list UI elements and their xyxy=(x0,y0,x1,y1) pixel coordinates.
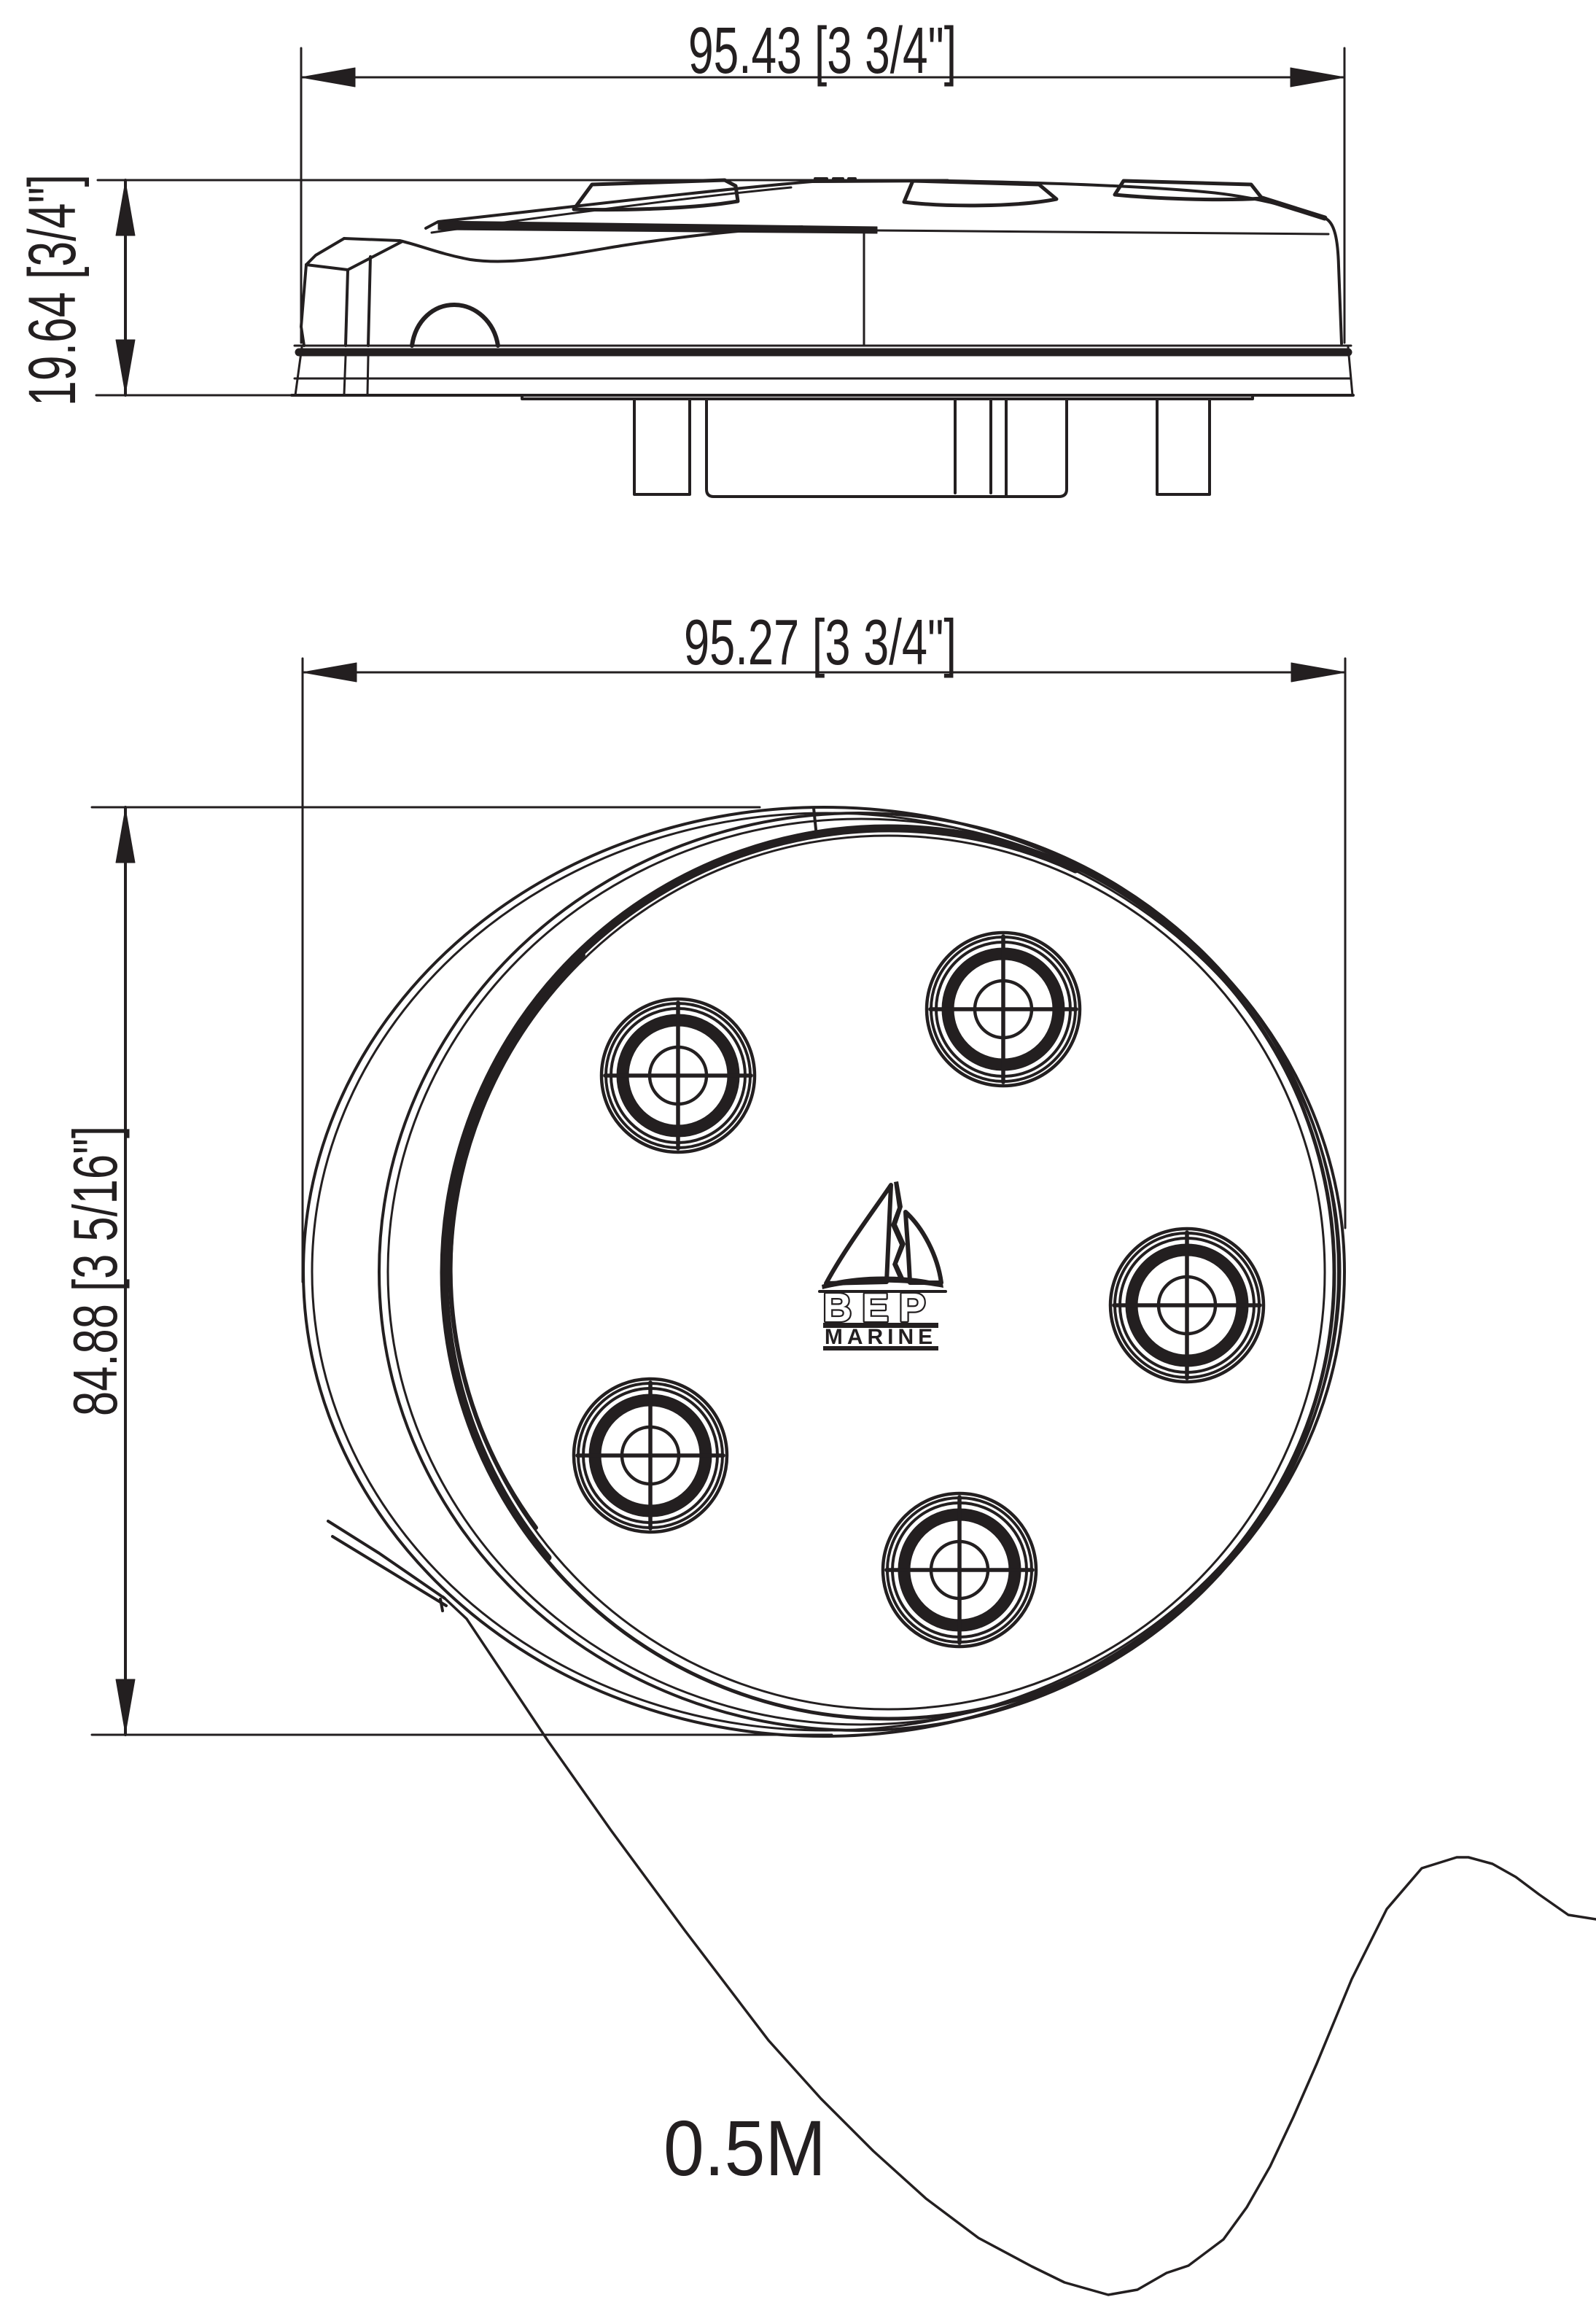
svg-text:95.27 [3 3/4"]: 95.27 [3 3/4"] xyxy=(684,606,957,678)
svg-text:84.88 [3 5/16"]: 84.88 [3 5/16"] xyxy=(61,1126,131,1416)
svg-text:0.5M: 0.5M xyxy=(663,2104,826,2192)
svg-text:MARINE: MARINE xyxy=(825,1325,937,1349)
svg-text:95.43 [3 3/4"]: 95.43 [3 3/4"] xyxy=(688,15,957,88)
svg-text:19.64 [3/4"]: 19.64 [3/4"] xyxy=(15,174,90,406)
